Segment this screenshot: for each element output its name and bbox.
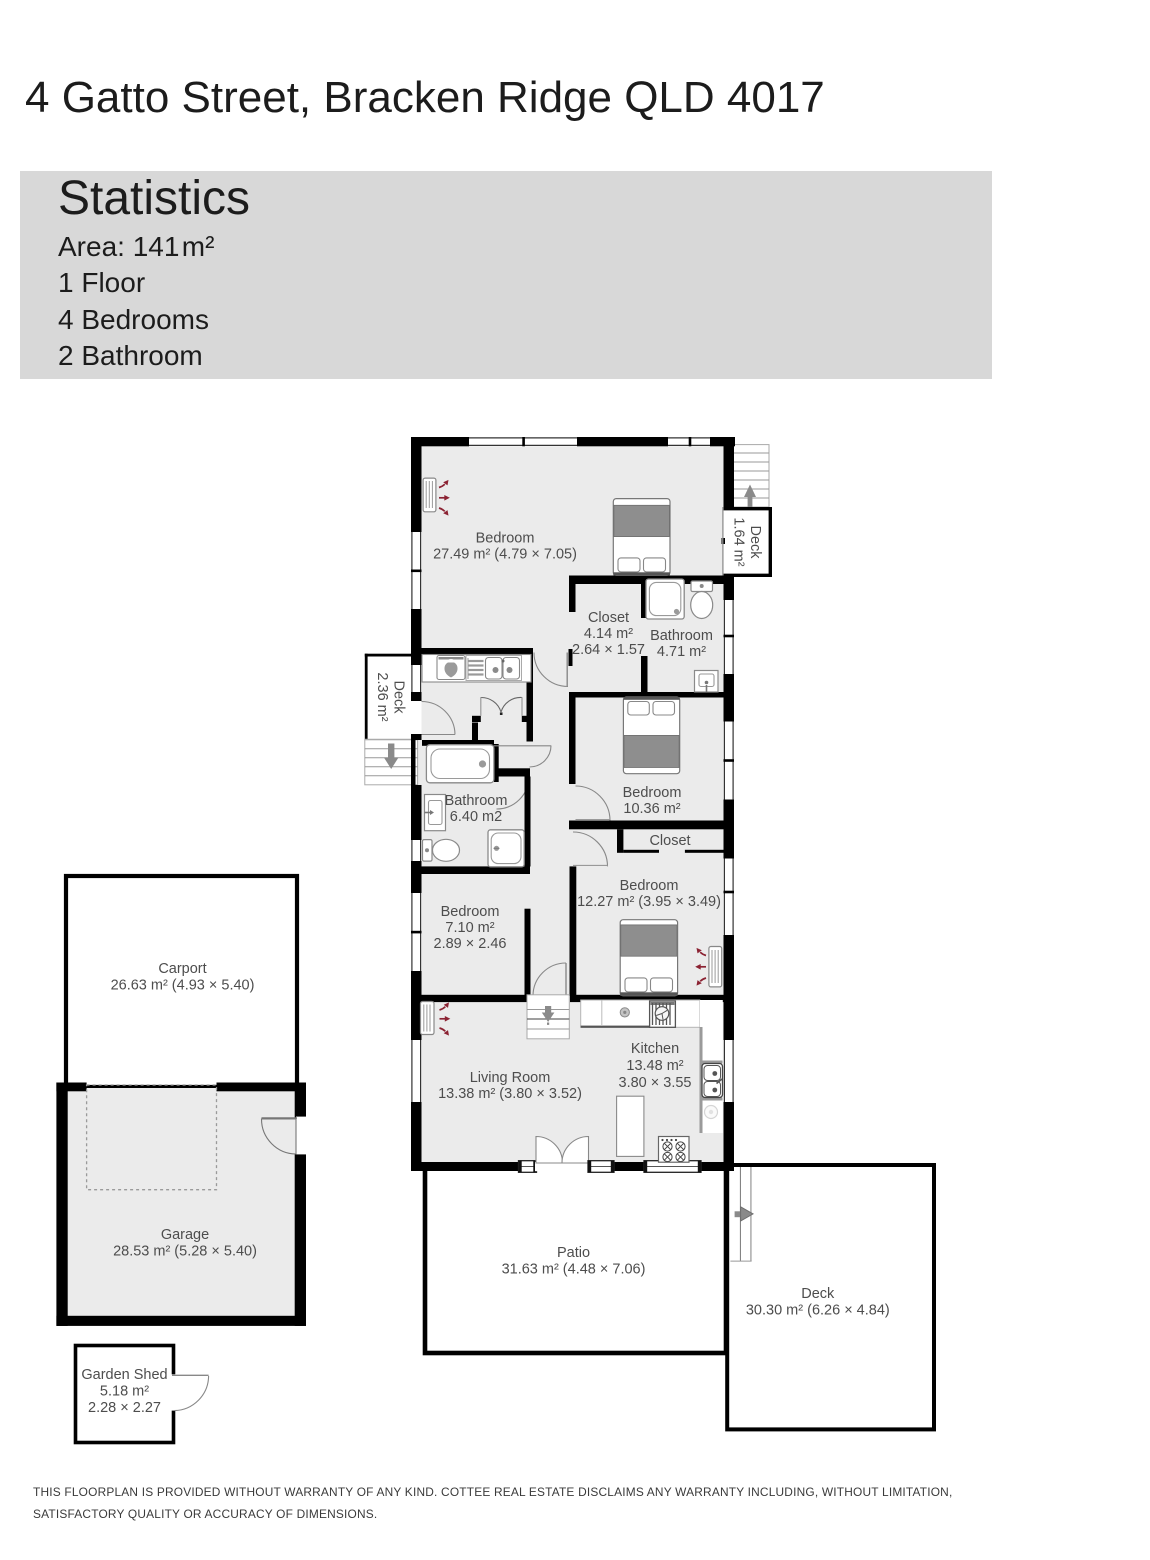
svg-text:Patio: Patio [557,1245,590,1261]
svg-text:28.53 m² (5.28 × 5.40): 28.53 m² (5.28 × 5.40) [113,1244,257,1260]
svg-text:7.10 m²: 7.10 m² [445,920,494,936]
svg-text:13.48 m²: 13.48 m² [626,1058,683,1074]
svg-text:3.80 × 3.55: 3.80 × 3.55 [619,1075,692,1091]
svg-text:Closet: Closet [649,833,690,849]
svg-text:Garage: Garage [161,1227,209,1243]
svg-text:Kitchen: Kitchen [631,1041,679,1057]
svg-text:4.14 m²: 4.14 m² [584,626,633,642]
svg-text:Closet: Closet [588,610,629,626]
svg-text:Bedroom: Bedroom [620,878,679,894]
svg-text:Carport: Carport [158,961,206,977]
svg-text:31.63 m² (4.48 × 7.06): 31.63 m² (4.48 × 7.06) [502,1262,646,1278]
svg-text:Bedroom: Bedroom [441,904,500,920]
svg-text:Living Room: Living Room [470,1070,551,1086]
svg-text:10.36 m²: 10.36 m² [623,801,680,817]
svg-text:2.89 × 2.46: 2.89 × 2.46 [434,936,507,952]
svg-text:30.30 m² (6.26 × 4.84): 30.30 m² (6.26 × 4.84) [746,1303,890,1319]
svg-text:6.40 m2: 6.40 m2 [450,809,502,825]
svg-text:Bedroom: Bedroom [476,531,535,547]
svg-text:Deck: Deck [801,1286,835,1302]
svg-text:2.64 × 1.57: 2.64 × 1.57 [572,642,645,658]
svg-text:Bedroom: Bedroom [623,785,682,801]
svg-text:2.28 × 2.27: 2.28 × 2.27 [88,1400,161,1416]
svg-text:13.38 m² (3.80 × 3.52): 13.38 m² (3.80 × 3.52) [438,1086,582,1102]
svg-text:Bathroom: Bathroom [650,628,713,644]
svg-text:26.63 m² (4.93 × 5.40): 26.63 m² (4.93 × 5.40) [111,978,255,994]
svg-text:27.49 m² (4.79 × 7.05): 27.49 m² (4.79 × 7.05) [433,547,577,563]
svg-text:Bathroom: Bathroom [445,793,508,809]
svg-text:4.71 m²: 4.71 m² [657,644,706,660]
svg-text:12.27 m² (3.95 × 3.49): 12.27 m² (3.95 × 3.49) [577,894,721,910]
svg-text:Garden Shed: Garden Shed [81,1367,167,1383]
svg-text:5.18 m²: 5.18 m² [100,1384,149,1400]
